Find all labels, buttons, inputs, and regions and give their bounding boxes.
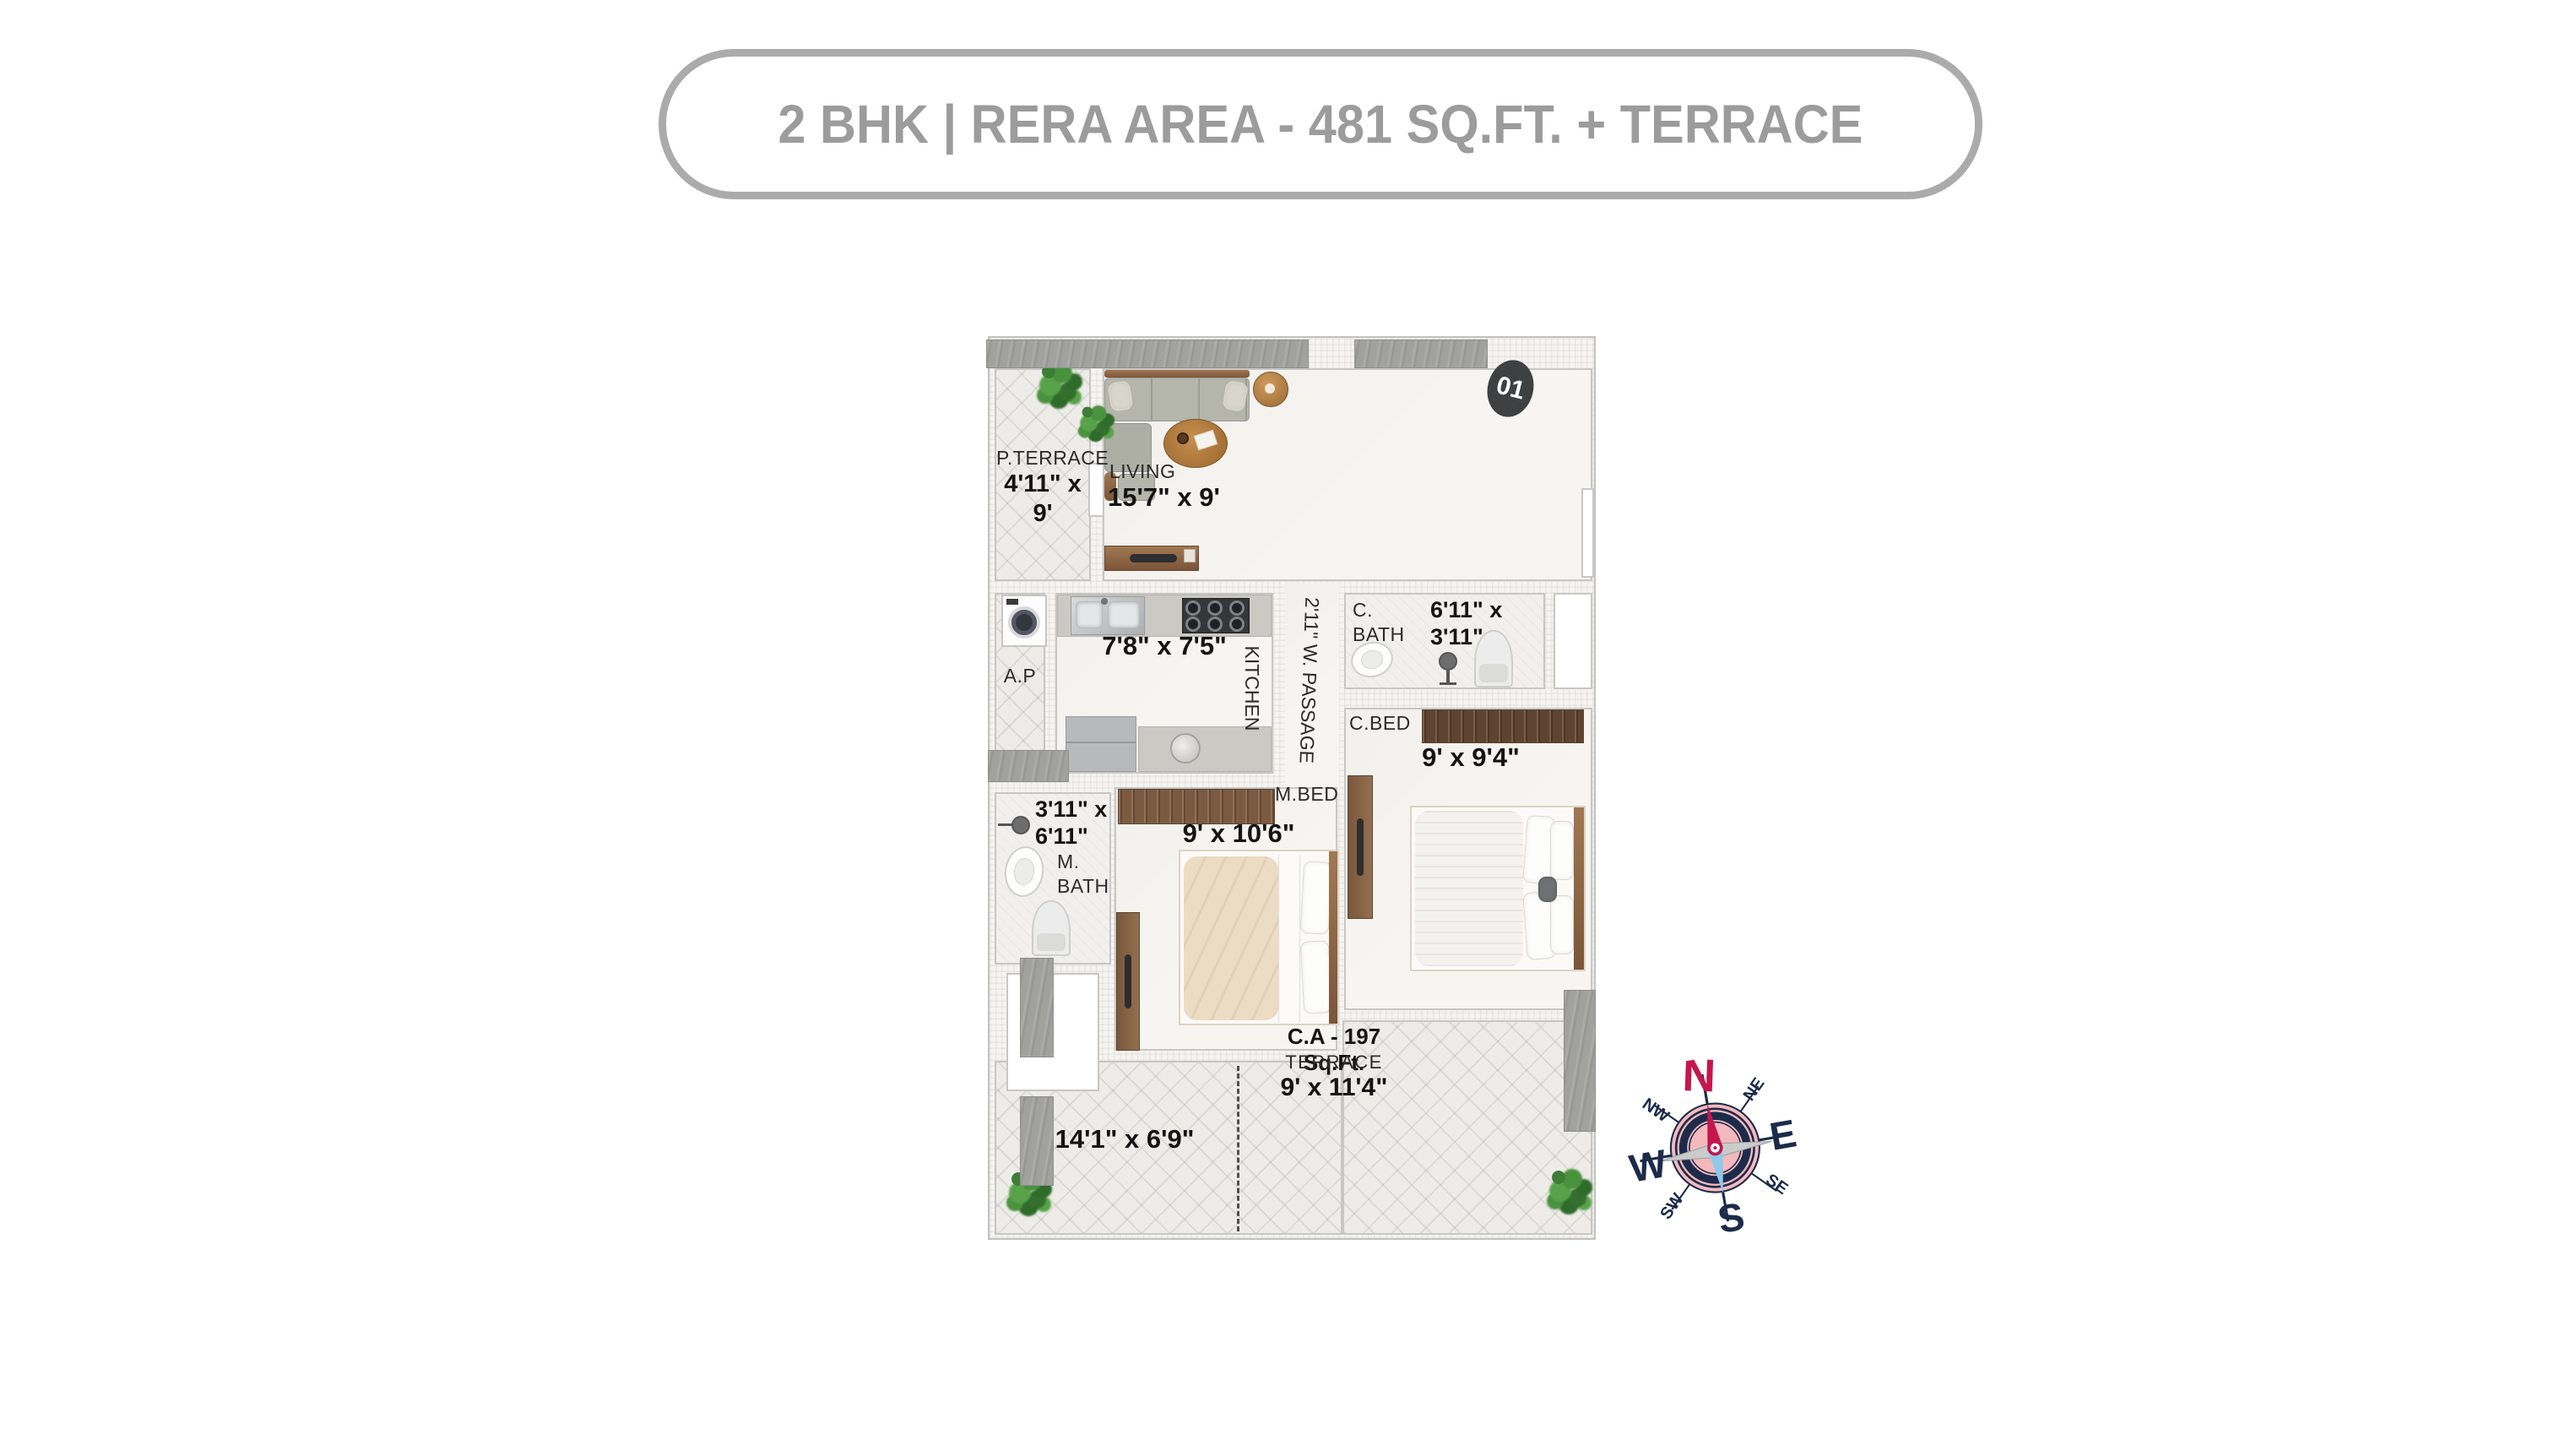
fridge-door-line — [1066, 742, 1136, 743]
sofa-pillow — [1108, 380, 1134, 412]
compass-label-e: E — [1766, 1111, 1799, 1159]
mbath-shower-head — [1011, 816, 1030, 834]
mbed-dresser — [1116, 912, 1140, 1051]
kitchen-drainboard — [1108, 601, 1140, 628]
label-ap: A.P — [996, 664, 1044, 688]
washing-machine-drum — [1008, 606, 1040, 639]
wall-duct-right-of-bath — [1554, 593, 1592, 689]
washing-machine — [1001, 595, 1047, 647]
mbed-pillow — [1300, 861, 1332, 935]
cbed-dresser-handle — [1357, 818, 1364, 875]
compass-rose: N E S W NE SE SW NW — [1612, 1043, 1817, 1248]
cbed-wardrobe — [1422, 709, 1584, 743]
rcc-wall-block — [1020, 958, 1054, 1057]
label-m-bed: M.BED — [1275, 782, 1338, 807]
dims-p-terrace: 4'11" x 9' — [993, 470, 1093, 529]
mbath-toilet — [1032, 900, 1071, 956]
dims-c-bed: 9' x 9'4" — [1403, 742, 1538, 773]
mbed-dresser-handle — [1125, 954, 1131, 1009]
compass-label-se: SE — [1762, 1171, 1791, 1198]
cbath-shower-bar — [1440, 682, 1456, 685]
sofa-back-frame — [1104, 370, 1250, 378]
terrace-divider-dashed-line — [1237, 1066, 1239, 1231]
label-p-terrace: P.TERRACE — [996, 446, 1089, 470]
rcc-wall-block — [986, 340, 1309, 368]
mbath-washbasin-bowl — [1012, 857, 1036, 886]
cbed-bed — [1410, 806, 1586, 971]
kitchen-faucet — [1101, 598, 1108, 605]
cbath-toilet-lid — [1479, 664, 1508, 682]
mbed-pillow — [1300, 940, 1332, 1014]
plant — [1552, 1171, 1565, 1184]
label-c-bath: C. BATH — [1353, 598, 1417, 647]
rcc-wall-block — [1354, 340, 1488, 368]
coffee-table-bowl — [1177, 432, 1189, 444]
dims-c-bath: 6'11" x 3'11" — [1430, 596, 1533, 651]
plant — [1082, 407, 1093, 418]
kitchen-wet-grinder — [1170, 733, 1201, 764]
label-kitchen-vertical: KITCHEN — [1243, 638, 1263, 739]
kitchen-fridge — [1066, 716, 1136, 772]
mbath-shower-arm — [998, 823, 1013, 826]
mbath-toilet-lid — [1037, 933, 1066, 951]
dims-living: 15'7" x 9' — [1108, 481, 1220, 513]
cbath-shower-head — [1439, 652, 1457, 671]
mbed-duvet — [1184, 856, 1278, 1020]
side-table-cup — [1265, 383, 1275, 394]
compass-label-nw: NW — [1639, 1095, 1673, 1126]
tv-unit-decor — [1184, 549, 1196, 562]
cbed-headboard — [1574, 807, 1584, 970]
title-banner: 2 BHK | RERA AREA - 481 SQ.FT. + TERRACE — [659, 49, 1982, 199]
washing-machine-panel — [1006, 599, 1018, 605]
page-title: 2 BHK | RERA AREA - 481 SQ.FT. + TERRACE — [778, 93, 1863, 155]
cbed-pillow — [1550, 821, 1574, 880]
rcc-wall-block — [1564, 990, 1596, 1132]
dims-terrace-right: 9' x 11'4" — [1258, 1073, 1410, 1103]
dims-m-bed: 9' x 10'6" — [1167, 818, 1310, 849]
window-right-wall — [1581, 488, 1594, 578]
compass-svg: N E S W NE SE SW NW — [1612, 1043, 1817, 1248]
cbed-pillow — [1550, 895, 1574, 954]
rcc-wall-block — [988, 750, 1069, 782]
cbath-washbasin-bowl — [1359, 649, 1385, 671]
label-terrace-right: TERRACE — [1258, 1051, 1410, 1074]
label-c-bed: C.BED — [1349, 711, 1411, 736]
label-living: LIVING — [1109, 459, 1175, 484]
floor-plan: P.TERRACE 4'11" x 9' LIVING 15'7" x 9' 7… — [988, 336, 1596, 1240]
tv-soundbar — [1130, 554, 1177, 562]
hob-burner — [1229, 601, 1245, 616]
hob-burner — [1207, 601, 1223, 616]
cbed-accent-pillow — [1538, 877, 1557, 902]
cbed-dresser — [1348, 775, 1373, 919]
mbed-sheet-fold — [1278, 855, 1300, 1022]
compass-label-s: S — [1715, 1194, 1748, 1242]
dims-terrace-left: 14'1" x 6'9" — [1040, 1123, 1209, 1155]
compass-label-ne: NE — [1740, 1074, 1769, 1104]
dims-m-bath: 3'11" x 6'11" — [1035, 796, 1136, 850]
compass-label-w: W — [1626, 1141, 1670, 1191]
hob-burner — [1185, 601, 1201, 616]
mbed-bed — [1179, 850, 1339, 1025]
kitchen-sink-bowl — [1076, 601, 1103, 628]
page-canvas: 2 BHK | RERA AREA - 481 SQ.FT. + TERRACE — [0, 0, 2576, 1451]
label-m-bath: M. BATH — [1057, 850, 1118, 899]
cbed-duvet — [1415, 811, 1523, 966]
compass-label-n: N — [1682, 1049, 1717, 1101]
mbed-headboard — [1329, 851, 1337, 1024]
